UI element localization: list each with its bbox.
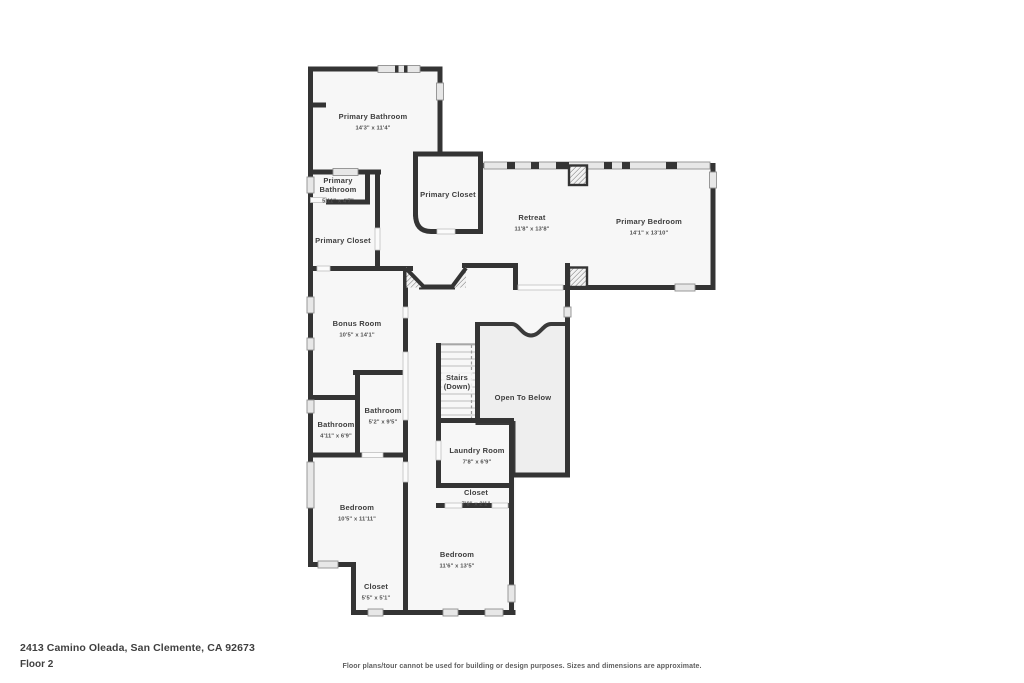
room-label-primary-bathroom-2: PrimaryBathroom5'11" x 4'7" xyxy=(319,176,356,205)
footer-address: 2413 Camino Oleada, San Clemente, CA 926… xyxy=(20,642,255,654)
room-label-open-to-below: Open To Below xyxy=(495,393,552,402)
room-label-primary-closet-1: Primary Closet xyxy=(315,236,371,245)
floor-plan-page: Primary Bathroom14'3" x 11'4"PrimaryBath… xyxy=(0,0,1024,683)
footer-floor-label: Floor 2 xyxy=(20,659,53,670)
room-label-primary-closet-2: Primary Closet xyxy=(420,190,476,199)
floor-plan-svg: Primary Bathroom14'3" x 11'4"PrimaryBath… xyxy=(0,0,1024,683)
footer-disclaimer: Floor plans/tour cannot be used for buil… xyxy=(312,663,732,670)
room-label-stairs: Stairs(Down) xyxy=(444,373,471,391)
